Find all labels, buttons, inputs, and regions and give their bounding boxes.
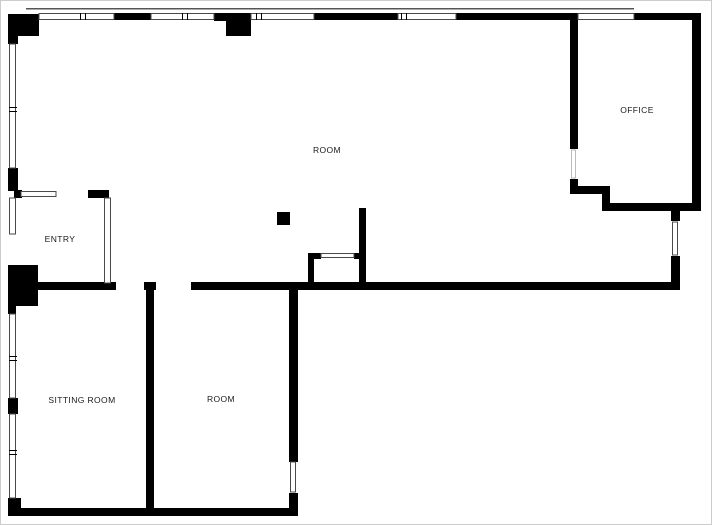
wall-segment (105, 283, 111, 289)
floor-plan-drawing: ROOM OFFICE ENTRY SITTING ROOM ROOM (1, 1, 712, 525)
wall-segment (692, 13, 701, 211)
window-mullion (85, 13, 86, 20)
window-sill-line (26, 8, 634, 9)
window-mullion (261, 13, 262, 20)
wall-segment (114, 13, 151, 20)
window (578, 14, 634, 20)
wall-segment (8, 168, 18, 191)
doors (21, 150, 576, 492)
room-label-bottom-room: ROOM (207, 394, 235, 404)
wall-segment (144, 282, 156, 290)
exterior-walls (8, 8, 701, 516)
office-door-opening (572, 150, 576, 178)
entry-exterior-door-leaf (21, 192, 56, 197)
wall-segment (634, 13, 701, 20)
wall-segment (8, 14, 18, 44)
window-mullion (406, 13, 407, 20)
room-label-sitting-room: SITTING ROOM (48, 395, 115, 405)
wall-segment (88, 190, 109, 198)
floor-plan: ROOM OFFICE ENTRY SITTING ROOM ROOM (0, 0, 712, 525)
window-mullion (187, 13, 188, 20)
window-mullion (80, 13, 81, 20)
window (251, 14, 314, 20)
wall-segment (314, 13, 398, 20)
closet-door-leaf (321, 254, 354, 258)
entry-partition-door (105, 198, 111, 283)
column (277, 212, 290, 225)
window-mullion (401, 13, 402, 20)
wall-segment (289, 493, 298, 508)
window-mullion (9, 107, 17, 108)
wall-segment (456, 13, 578, 20)
window-mullion (9, 360, 17, 361)
room-label-main-room: ROOM (313, 145, 341, 155)
bottom-room-door-leaf (291, 462, 296, 492)
window (10, 198, 16, 234)
window-mullion (9, 454, 17, 455)
window (10, 414, 16, 498)
window-mullion (9, 450, 17, 451)
wall-segment (602, 203, 701, 211)
wall-pier (8, 265, 38, 306)
wall-segment (289, 290, 298, 462)
wall-pier (226, 20, 251, 36)
window (39, 14, 114, 20)
wall-segment (308, 253, 321, 259)
wall-segment (8, 306, 16, 314)
wall-segment (214, 13, 251, 21)
window (10, 44, 16, 168)
wall-segment (16, 508, 298, 516)
wall-segment (191, 282, 679, 290)
wall-segment (570, 19, 578, 149)
wall-segment (146, 290, 154, 508)
window-mullion (256, 13, 257, 20)
wall-segment (359, 208, 366, 290)
wall-segment (8, 398, 18, 414)
window-mullion (182, 13, 183, 20)
window-mullion (9, 356, 17, 357)
wall-segment (671, 211, 680, 221)
room-label-office: OFFICE (620, 105, 654, 115)
interior-walls (38, 19, 701, 508)
room-label-entry: ENTRY (45, 234, 76, 244)
window-mullion (9, 111, 17, 112)
window (673, 222, 678, 255)
